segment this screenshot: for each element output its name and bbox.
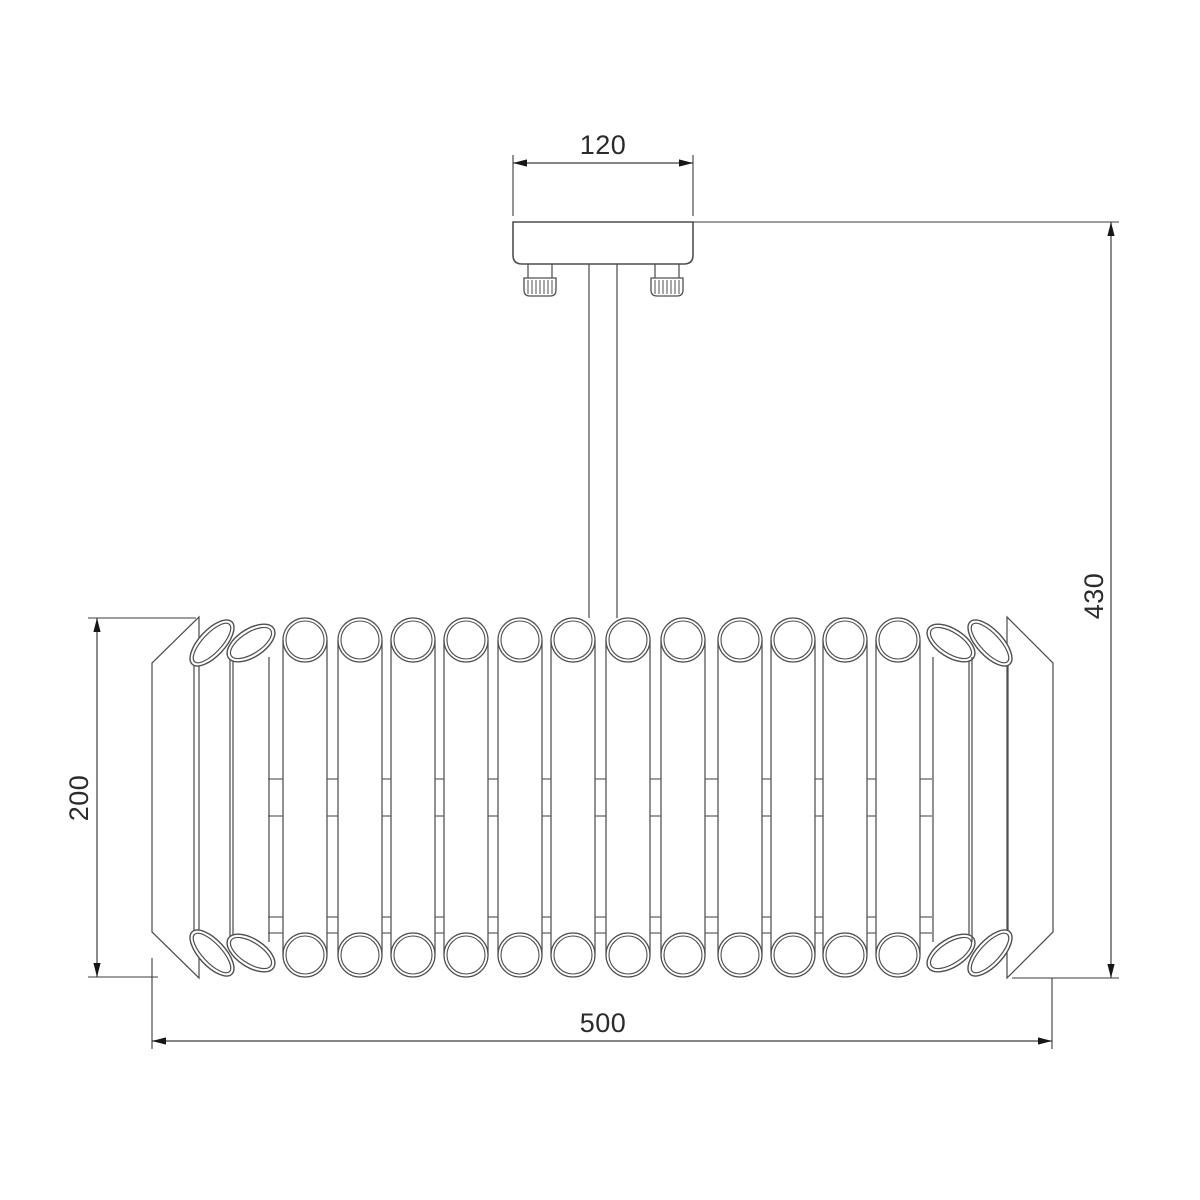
shade-tube <box>606 618 650 977</box>
tube-top-opening <box>771 618 815 662</box>
screw-neck <box>655 264 679 278</box>
tube-top-opening <box>498 618 542 662</box>
tube-top-opening <box>661 618 705 662</box>
tube-top-opening <box>823 618 867 662</box>
tube-top-opening <box>551 618 595 662</box>
tube-bottom-opening <box>718 933 762 977</box>
shade-tube <box>718 618 762 977</box>
tube-top-opening <box>606 618 650 662</box>
shade-tube <box>498 618 542 977</box>
tube-bottom-opening <box>551 933 595 977</box>
tube-bottom-opening <box>606 933 650 977</box>
dim-label-shade-width: 500 <box>580 1008 627 1038</box>
dimension-shade-height <box>88 618 196 977</box>
shade-tube <box>338 618 382 977</box>
tube-top-opening <box>876 618 920 662</box>
drawing-canvas: 120 200 430 500 <box>0 0 1200 1200</box>
dimension-arrow <box>1107 964 1114 978</box>
tube-bottom-opening <box>391 933 435 977</box>
shade-tube <box>391 618 435 977</box>
fixture-layer <box>152 222 1053 983</box>
dimension-arrow <box>1107 222 1114 236</box>
dim-label-shade-height: 200 <box>64 775 94 822</box>
tube-top-opening <box>338 618 382 662</box>
dimension-arrow <box>513 159 527 166</box>
shade-tube <box>444 618 488 977</box>
dim-label-mount-width: 120 <box>580 130 627 160</box>
tube-bottom-opening <box>823 933 867 977</box>
dim-label-total-height: 430 <box>1079 573 1109 620</box>
tube-bottom-opening <box>338 933 382 977</box>
shade-panel-left <box>152 617 199 978</box>
screw-neck <box>528 264 552 278</box>
tube-top-opening <box>283 618 327 662</box>
dimension-layer <box>88 155 1119 1049</box>
dimension-arrow <box>93 963 100 977</box>
dimension-arrow <box>93 618 100 632</box>
dimension-arrow <box>152 1037 166 1044</box>
tube-bottom-opening <box>498 933 542 977</box>
dimension-total-height <box>693 222 1119 978</box>
shade-tube <box>283 618 327 977</box>
tube-bottom-opening <box>444 933 488 977</box>
tube-top-opening <box>718 618 762 662</box>
canopy <box>513 222 693 264</box>
dimension-arrow <box>679 159 693 166</box>
mounting-screw <box>524 264 556 296</box>
shade-tube <box>823 618 867 977</box>
dimension-mount-width <box>513 155 693 216</box>
tube-bottom-opening <box>661 933 705 977</box>
tube-bottom-opening <box>283 933 327 977</box>
shade-tube <box>661 618 705 977</box>
tube-top-opening <box>444 618 488 662</box>
shade-tube <box>876 618 920 977</box>
dimension-arrow <box>1038 1037 1052 1044</box>
tube-bottom-opening <box>771 933 815 977</box>
tube-bottom-opening <box>876 933 920 977</box>
tube-top-opening <box>391 618 435 662</box>
shade-panel-right <box>1007 617 1053 978</box>
shade-tube <box>771 618 815 977</box>
mounting-screw <box>651 264 683 296</box>
dimension-labels: 120 200 430 500 <box>64 130 1109 1038</box>
lamp-dimension-drawing: 120 200 430 500 <box>0 0 1200 1200</box>
shade-tube <box>551 618 595 977</box>
